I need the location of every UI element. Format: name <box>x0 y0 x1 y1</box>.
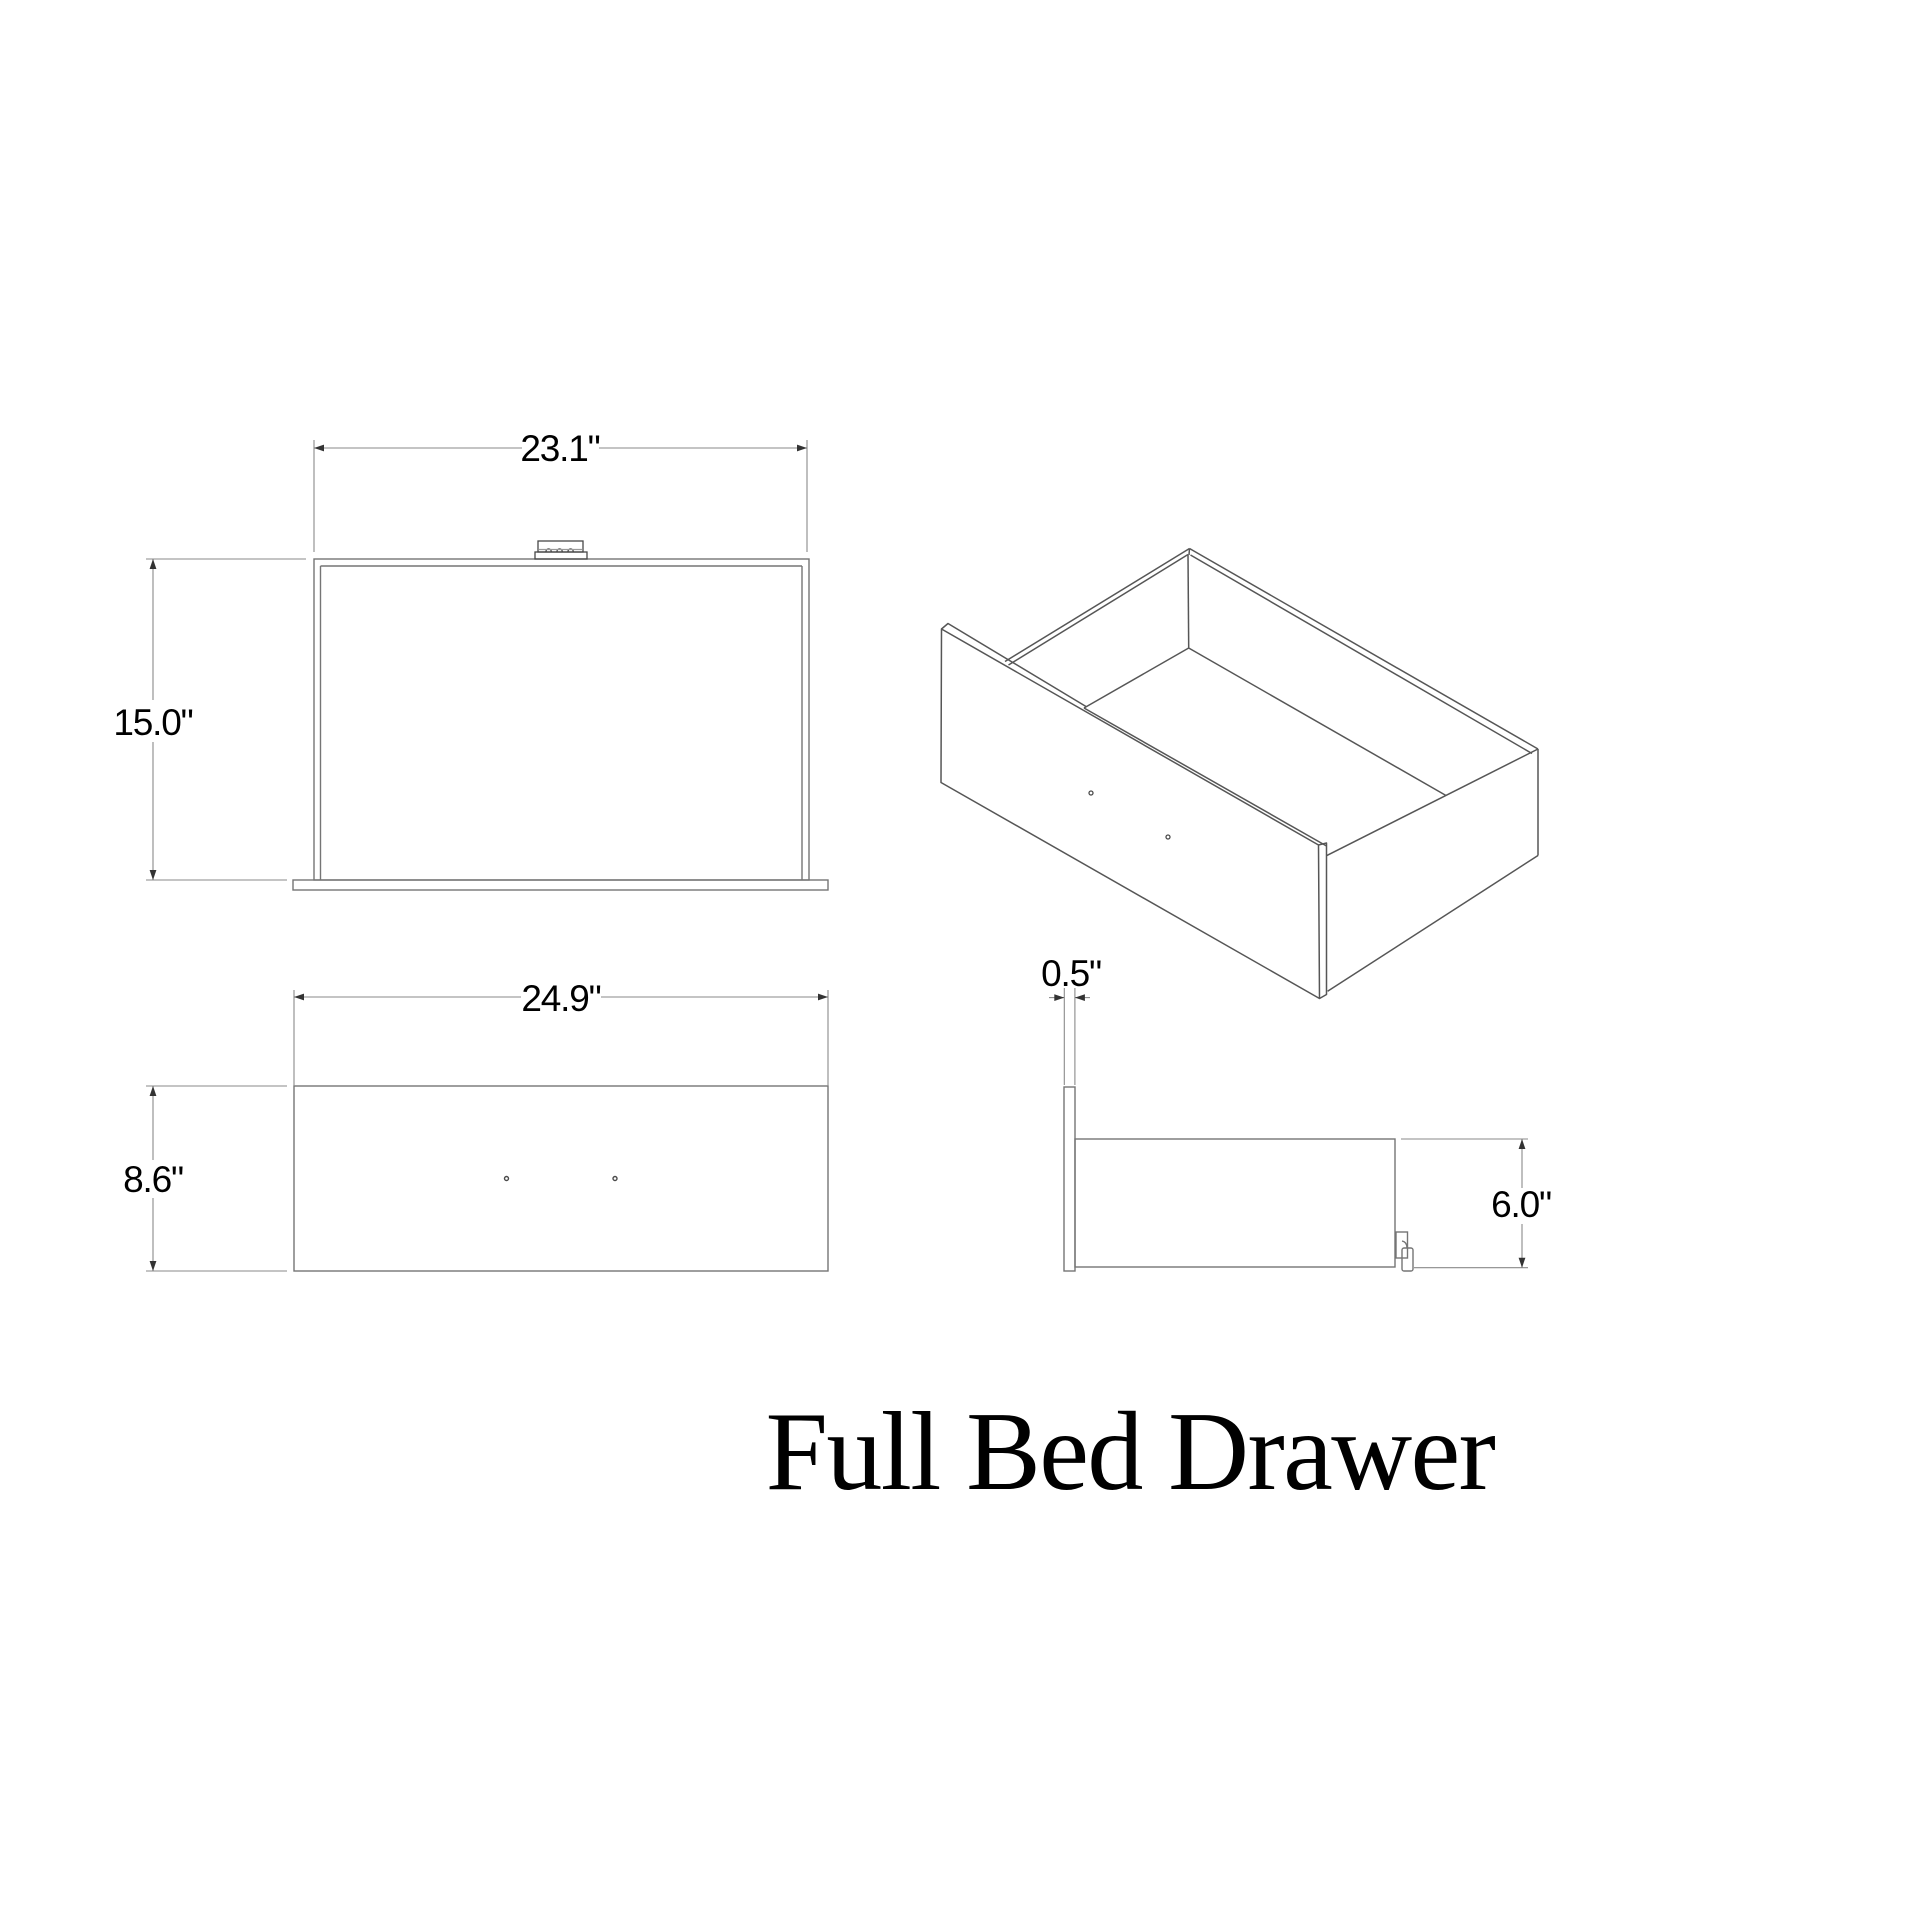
svg-text:24.9": 24.9" <box>521 978 600 1019</box>
svg-text:8.6": 8.6" <box>123 1159 183 1200</box>
svg-text:Full Bed Drawer: Full Bed Drawer <box>766 1390 1496 1514</box>
svg-text:15.0": 15.0" <box>113 702 192 743</box>
svg-text:0.5": 0.5" <box>1041 953 1101 994</box>
svg-text:6.0": 6.0" <box>1491 1184 1551 1225</box>
svg-text:23.1": 23.1" <box>520 428 599 469</box>
